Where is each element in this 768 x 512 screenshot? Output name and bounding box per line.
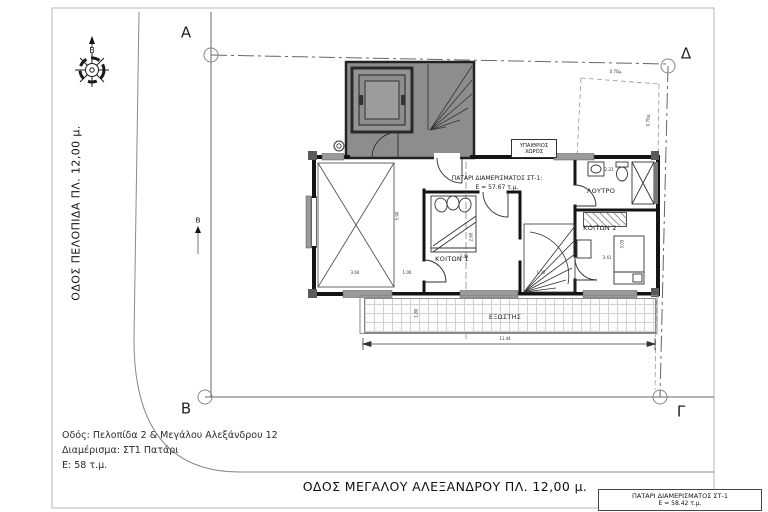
bed-1	[431, 196, 476, 252]
desk	[577, 240, 591, 258]
dim-bedroom2-width: 3.41	[603, 256, 612, 260]
title-box-line1: ΠΑΤΑΡΙ ΔΙΑΜΕΡΙΣΜΑΤΟΣ ΣΤ-1	[632, 492, 728, 500]
internal-stairs	[524, 224, 575, 292]
elevator-car	[365, 81, 399, 119]
corner-label-a: Α	[181, 26, 191, 41]
apartment-label: ΠΑΤΑΡΙ ΔΙΑΜΕΡΙΣΜΑΤΟΣ ΣΤ-1:	[452, 176, 543, 182]
left-window	[312, 196, 317, 248]
shower-wall	[654, 162, 658, 204]
info-block: Οδός: Πελοπίδα 2 & Μεγάλου Αλεξάνδρου 12…	[62, 428, 278, 473]
dim-bedroom1-width: 3.48	[460, 255, 469, 259]
compass-north-label: Β	[89, 47, 95, 55]
apartment-area: Ε = 57.67 τ.μ.	[476, 185, 519, 191]
toilet	[617, 167, 628, 181]
dim-balcony-width: 11.44	[499, 337, 510, 341]
sink	[588, 162, 604, 176]
window-sill	[306, 196, 311, 248]
info-area: Ε: 58 τ.μ.	[62, 458, 278, 473]
dim-void-height: 5.90	[395, 212, 400, 221]
void-room	[318, 163, 394, 287]
corner-label-b: Β	[181, 402, 191, 417]
dim-void-width: 3.60	[351, 271, 360, 275]
section-marker-label: Β	[196, 218, 201, 225]
floor-plan-sheet: Β Α Δ Β Γ Β ΟΔΟΣ ΠΕΛΟΠΙΔΑ ΠΛ. 12,00 μ. Ο…	[0, 0, 768, 512]
open-air-label-box: ΥΠΑΙΘΡΙΟΣ ΧΩΡΟΣ	[511, 139, 557, 158]
dim-elevator: 1.00	[360, 96, 365, 105]
corner-label-g: Γ	[677, 405, 685, 420]
dim-setback-top: 0.70μ.	[610, 70, 623, 74]
room-label-bedroom2: ΚΟΙΤΩΝ 2	[583, 225, 617, 232]
dim-balcony-depth: 1.80	[414, 309, 419, 318]
dim-stair-width: 1.30	[537, 271, 546, 275]
bathroom-fixtures	[588, 162, 654, 204]
dim-bedroom2-height: 3.05	[620, 240, 625, 249]
section-marker	[195, 226, 201, 254]
column-marker	[334, 141, 344, 151]
dim-bedroom1-height: 2.60	[469, 233, 474, 242]
dim-corridor-width: 1.00	[403, 271, 412, 275]
dim-setback-right: 0.70μ.	[646, 114, 651, 127]
info-address: Οδός: Πελοπίδα 2 & Μεγάλου Αλεξάνδρου 12	[62, 428, 278, 443]
room-label-balcony: ΕΞΩΣΤΗΣ	[489, 314, 521, 321]
bed-2	[577, 236, 644, 284]
title-box-line2: Ε = 58.42 τ.μ.	[659, 500, 702, 508]
toilet-tank	[616, 162, 628, 167]
compass-icon	[75, 36, 109, 87]
street-label-left: ΟΔΟΣ ΠΕΛΟΠΙΔΑ ΠΛ. 12,00 μ.	[71, 125, 82, 300]
open-air-line2: ΧΩΡΟΣ	[525, 149, 543, 155]
corner-label-d: Δ	[681, 47, 691, 62]
title-box: ΠΑΤΑΡΙ ΔΙΑΜΕΡΙΣΜΑΤΟΣ ΣΤ-1 Ε = 58.42 τ.μ.	[598, 489, 762, 511]
core-block	[334, 62, 474, 158]
dim-bath-width: 2.23	[605, 168, 614, 172]
room-label-bathroom: ΛΟΥΤΡΟ	[587, 188, 615, 195]
street-label-bottom: ΟΔΟΣ ΜΕΓΑΛΟΥ ΑΛΕΞΑΝΔΡΟΥ ΠΛ. 12,00 μ.	[303, 481, 588, 494]
info-apartment: Διαμέρισμα: ΣΤ1 Πατάρι	[62, 443, 278, 458]
